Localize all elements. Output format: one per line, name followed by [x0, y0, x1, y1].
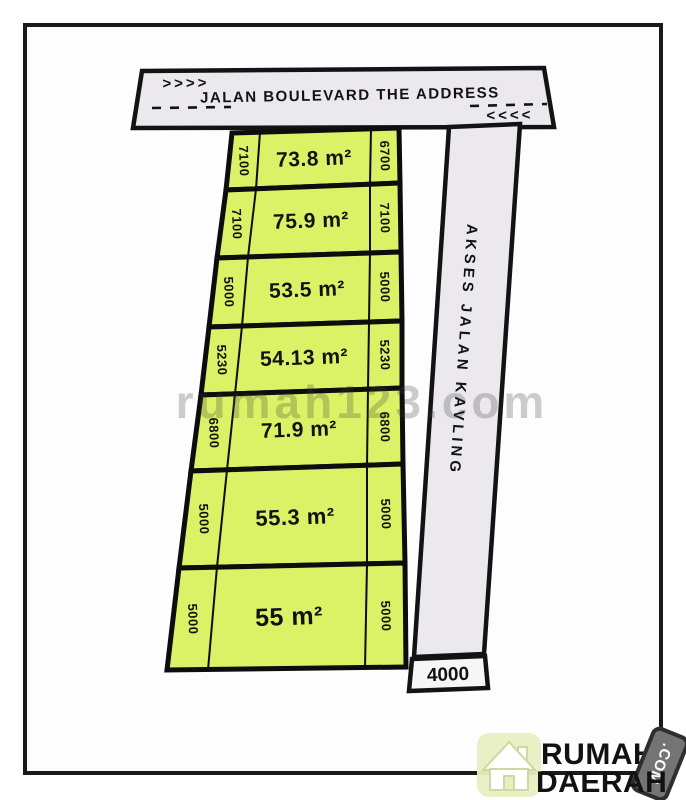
plot-1: 7100 6700 73.8 m² — [226, 128, 400, 190]
watermark: rumah123.com — [176, 376, 549, 428]
plot-3-left-dim: 5000 — [221, 276, 237, 307]
site-plan-image: >>>> <<<< JALAN BOULEVARD THE ADDRESS AK… — [0, 0, 686, 800]
plot-3: 5000 5000 53.5 m² — [209, 252, 402, 327]
road-width-label: 4000 — [427, 664, 470, 686]
plot-4-right-dim: 5230 — [377, 339, 393, 370]
plot-7-left-dim: 5000 — [185, 603, 201, 634]
plot-2-right-dim: 7100 — [377, 202, 393, 233]
plot-2-area-label: 75.9 m² — [273, 208, 350, 234]
plot-6: 5000 5000 55.3 m² — [179, 464, 405, 568]
plot-1-area-label: 73.8 m² — [276, 146, 353, 172]
plot-7-area-label: 55 m² — [255, 602, 324, 632]
plot-2: 7100 7100 75.9 m² — [217, 183, 401, 258]
plot-1-right-dim: 6700 — [377, 140, 393, 171]
plot-4-left-dim: 5230 — [214, 344, 230, 375]
plot-3-right-divider — [369, 253, 370, 322]
plot-7: 5000 5000 55 m² — [167, 563, 406, 670]
logo-daerah-text: DAERAH — [536, 766, 667, 799]
plot-3-right-dim: 5000 — [377, 271, 393, 302]
plot-1-right-divider — [370, 129, 371, 184]
plot-6-area-label: 55.3 m² — [255, 503, 335, 531]
plot-6-right-dim: 5000 — [378, 498, 394, 529]
plot-4-area-label: 54.13 m² — [260, 345, 349, 371]
boulevard-road: >>>> <<<< JALAN BOULEVARD THE ADDRESS — [133, 68, 554, 128]
plot-6-left-dim: 5000 — [196, 503, 212, 534]
plot-1-left-dim: 7100 — [236, 145, 252, 176]
plot-2-left-dim: 7100 — [229, 208, 245, 239]
logo: RUMAH .COM DAERAH — [477, 727, 686, 800]
site-plan: >>>> <<<< JALAN BOULEVARD THE ADDRESS AK… — [0, 0, 686, 800]
plot-3-area-label: 53.5 m² — [269, 277, 346, 303]
plot-7-right-dim: 5000 — [378, 600, 394, 631]
left-direction-arrows-icon: <<<< — [486, 107, 533, 125]
